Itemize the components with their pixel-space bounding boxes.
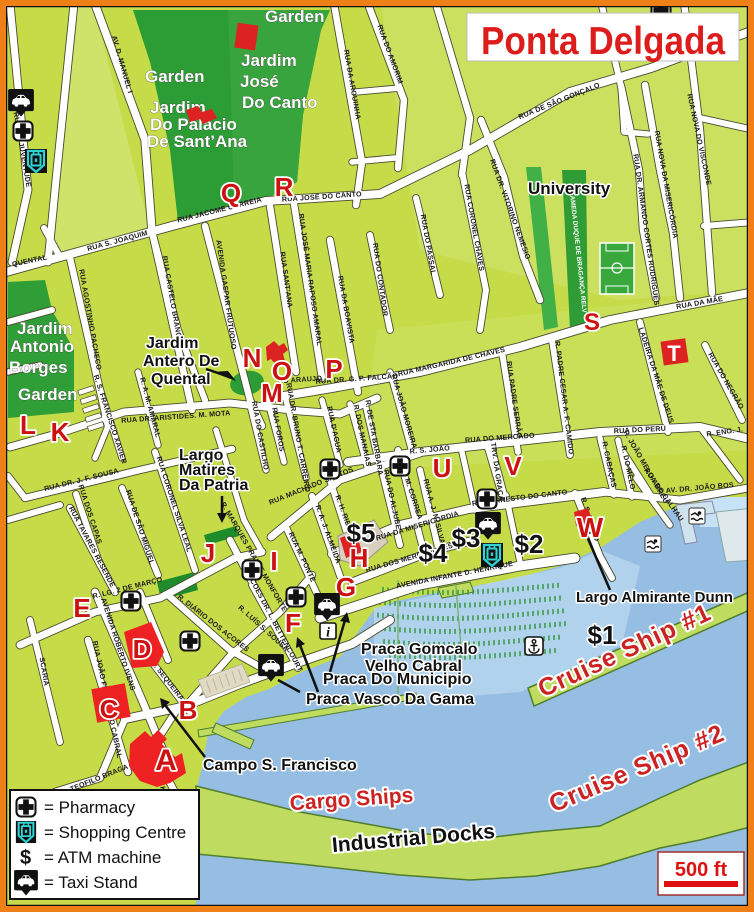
svg-text:De Sant’Ana: De Sant’Ana (147, 132, 248, 151)
svg-text:B: B (179, 695, 198, 725)
svg-text:$3: $3 (452, 523, 481, 553)
svg-text:Borges: Borges (9, 358, 68, 377)
svg-text:= ATM machine: = ATM machine (44, 848, 161, 867)
svg-text:Praca Gomcalo: Praca Gomcalo (361, 641, 478, 658)
svg-text:N: N (243, 343, 262, 373)
svg-text:Do Canto: Do Canto (242, 93, 318, 112)
svg-text:$2: $2 (515, 529, 544, 559)
svg-text:Largo Almirante Dunn: Largo Almirante Dunn (576, 589, 733, 606)
svg-text:Da Patria: Da Patria (179, 477, 248, 494)
svg-text:Antonio: Antonio (10, 337, 74, 356)
svg-text:= Shopping Centre: = Shopping Centre (44, 823, 186, 842)
svg-text:Garden: Garden (145, 67, 205, 86)
svg-text:E: E (73, 593, 90, 623)
svg-text:V: V (504, 451, 522, 481)
svg-text:S: S (584, 309, 600, 336)
svg-text:Antero De: Antero De (143, 353, 220, 370)
svg-text:W: W (577, 512, 604, 543)
svg-text:J: J (201, 538, 215, 568)
svg-text:I: I (270, 546, 277, 576)
svg-text:Garden: Garden (265, 7, 325, 26)
svg-text:Quental: Quental (151, 371, 211, 388)
svg-text:$: $ (20, 847, 31, 869)
svg-text:K: K (51, 417, 70, 447)
svg-text:Q: Q (221, 178, 241, 208)
svg-text:Praca Vasco Da Gama: Praca Vasco Da Gama (306, 691, 474, 708)
svg-text:University: University (528, 179, 611, 198)
svg-text:Jardim: Jardim (146, 335, 198, 352)
svg-text:$4: $4 (419, 538, 448, 568)
svg-text:U: U (433, 453, 452, 483)
svg-text:= Taxi Stand: = Taxi Stand (44, 873, 138, 892)
svg-text:P: P (325, 354, 342, 384)
svg-text:R: R (275, 172, 294, 202)
svg-text:L: L (20, 410, 36, 440)
svg-text:José: José (240, 72, 279, 91)
svg-text:Jardim: Jardim (241, 51, 297, 70)
svg-text:O: O (272, 356, 292, 386)
svg-text:Garden: Garden (18, 385, 78, 404)
svg-text:C: C (100, 694, 119, 724)
svg-text:$1: $1 (588, 620, 617, 650)
svg-text:= Pharmacy: = Pharmacy (44, 798, 136, 817)
svg-text:D: D (133, 634, 152, 664)
svg-text:Campo S. Francisco: Campo S. Francisco (203, 757, 357, 774)
svg-text:Ponta Delgada: Ponta Delgada (481, 20, 725, 63)
svg-text:500 ft: 500 ft (675, 859, 728, 881)
svg-text:F: F (285, 608, 301, 638)
svg-text:Praca Do Municipio: Praca Do Municipio (323, 671, 472, 688)
svg-text:T: T (667, 341, 681, 366)
svg-text:Jardim: Jardim (17, 319, 73, 338)
svg-text:$5: $5 (347, 518, 376, 548)
svg-text:A: A (155, 744, 177, 777)
